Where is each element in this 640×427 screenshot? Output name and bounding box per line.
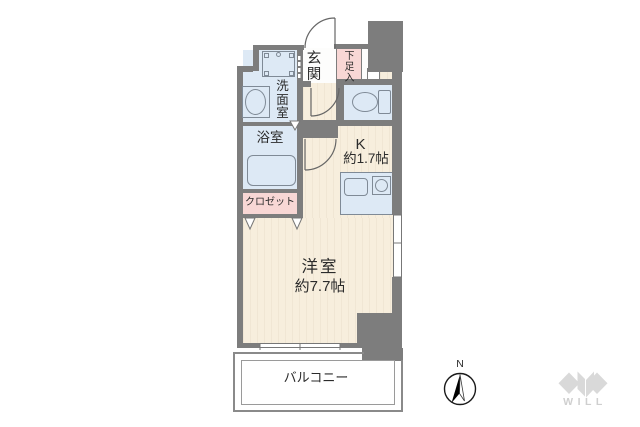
toilet-bowl-icon: [352, 92, 378, 112]
wall-segment: [340, 343, 357, 348]
wall-segment: [243, 189, 297, 193]
wall-segment: [334, 44, 368, 49]
wall-segment: [243, 122, 297, 126]
closet-label: クロゼット: [243, 197, 297, 208]
balcony-outline: [233, 410, 403, 412]
balcony-outline: [233, 352, 364, 354]
wall-pillar: [357, 313, 402, 348]
genkan-label: 玄関: [306, 52, 322, 83]
stove-burner-icon: [375, 179, 388, 192]
wall-segment: [392, 277, 402, 313]
will-logo-text: WILL: [560, 397, 610, 409]
wall-segment: [237, 343, 260, 348]
compass-icon: [445, 374, 476, 405]
entrance-door-swing-icon: [305, 18, 335, 48]
pan-drain: [276, 52, 281, 57]
shoe-storage-label: 下足入: [344, 52, 355, 84]
washroom-label: 洗面室: [276, 80, 289, 121]
wall-segment: [336, 85, 344, 120]
bathtub-icon: [247, 155, 296, 186]
wall-segment: [253, 45, 259, 71]
pan-corner: [289, 53, 294, 58]
toilet-tank-icon: [378, 90, 391, 114]
wall-block-top-right: [368, 21, 403, 72]
kitchen-size-label: 約1.7帖: [331, 152, 401, 167]
wall-block-hallway: [297, 120, 338, 138]
western-room-size-label: 約7.7帖: [270, 279, 370, 296]
kitchen-sink-icon: [344, 178, 368, 196]
window-right: [393, 215, 402, 277]
compass-north-label: N: [450, 359, 470, 371]
sink-bowl-icon: [245, 89, 266, 115]
floor-plan-canvas: 玄関 下足入 洗面室 浴室 クロゼット K 約1.7帖 洋室 約7.7帖 バルコ…: [0, 0, 640, 427]
pan-corner: [264, 53, 269, 58]
wall-segment: [392, 72, 402, 215]
pan-corner: [289, 71, 294, 76]
balcony-label: バルコニー: [258, 371, 374, 385]
pan-corner: [264, 71, 269, 76]
window-bottom: [260, 343, 340, 348]
will-logo-icon: [559, 372, 608, 398]
wall-segment: [243, 214, 297, 218]
balcony-outline: [401, 360, 403, 412]
hallway-floor: [303, 83, 338, 120]
bathroom-label: 浴室: [243, 131, 297, 146]
western-room-label: 洋室: [270, 258, 370, 276]
wall-segment: [338, 120, 393, 126]
balcony-outline: [233, 352, 235, 412]
